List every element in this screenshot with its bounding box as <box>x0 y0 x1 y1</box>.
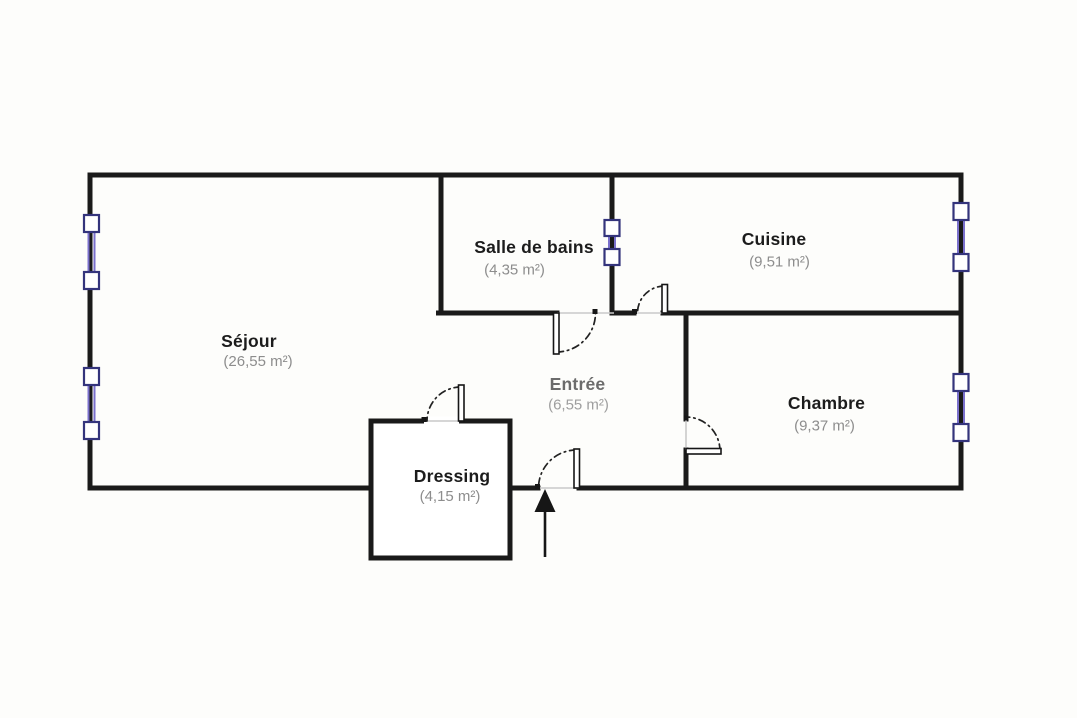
door-leaf-cuisine <box>662 285 668 314</box>
entry-arrow-head <box>535 489 556 512</box>
door-leaf-entrance <box>574 449 580 488</box>
floorplan-canvas: Séjour (26,55 m²) Salle de bains (4,35 m… <box>0 0 1077 718</box>
window-frame <box>954 203 969 220</box>
room-label-salle-de-bains: Salle de bains <box>474 237 594 257</box>
room-label-cuisine: Cuisine <box>742 229 807 249</box>
entry-arrow-icon <box>535 489 556 557</box>
door-arc-entrance <box>539 450 577 488</box>
window-frame <box>954 254 969 271</box>
window-frame <box>954 374 969 391</box>
room-label-entree: Entrée <box>550 374 606 394</box>
door-chambre <box>684 416 722 455</box>
window-frame <box>605 249 620 265</box>
window-frame <box>84 272 99 289</box>
door-arc-dressing <box>427 387 461 421</box>
floorplan-page: Séjour (26,55 m²) Salle de bains (4,35 m… <box>0 0 1077 718</box>
room-area-salle-de-bains: (4,35 m²) <box>484 262 545 279</box>
room-label-dressing: Dressing <box>414 466 491 486</box>
room-area-cuisine: (9,51 m²) <box>749 254 810 271</box>
door-arc-chambre <box>686 417 720 451</box>
window-frame <box>954 424 969 441</box>
room-area-chambre: (9,37 m²) <box>794 418 855 435</box>
window-frame <box>84 215 99 232</box>
door-jamb-chambre <box>684 416 689 421</box>
door-arc-cuisine <box>638 286 665 313</box>
door-leaf-dressing <box>459 385 465 421</box>
room-label-chambre: Chambre <box>788 393 865 413</box>
window-frame <box>84 368 99 385</box>
room-label-sejour: Séjour <box>221 331 277 351</box>
door-salle-de-bains <box>554 309 598 354</box>
door-dressing <box>422 385 465 422</box>
door-jamb-entrance <box>535 484 540 489</box>
room-labels: Séjour (26,55 m²) Salle de bains (4,35 m… <box>221 229 865 505</box>
door-entrance <box>535 449 580 489</box>
door-jamb-salle-de-bains <box>593 309 598 314</box>
door-jamb-dressing <box>422 417 427 422</box>
room-area-entree: (6,55 m²) <box>548 397 609 414</box>
door-jamb-cuisine <box>632 309 637 314</box>
door-leaf-chambre <box>686 449 721 455</box>
door-cuisine <box>632 285 668 315</box>
door-arc-salle-de-bains <box>557 313 596 352</box>
room-area-dressing: (4,15 m²) <box>420 488 481 505</box>
room-area-sejour: (26,55 m²) <box>223 353 292 370</box>
window-frame <box>605 220 620 236</box>
door-leaf-salle-de-bains <box>554 313 560 354</box>
window-frame <box>84 422 99 439</box>
